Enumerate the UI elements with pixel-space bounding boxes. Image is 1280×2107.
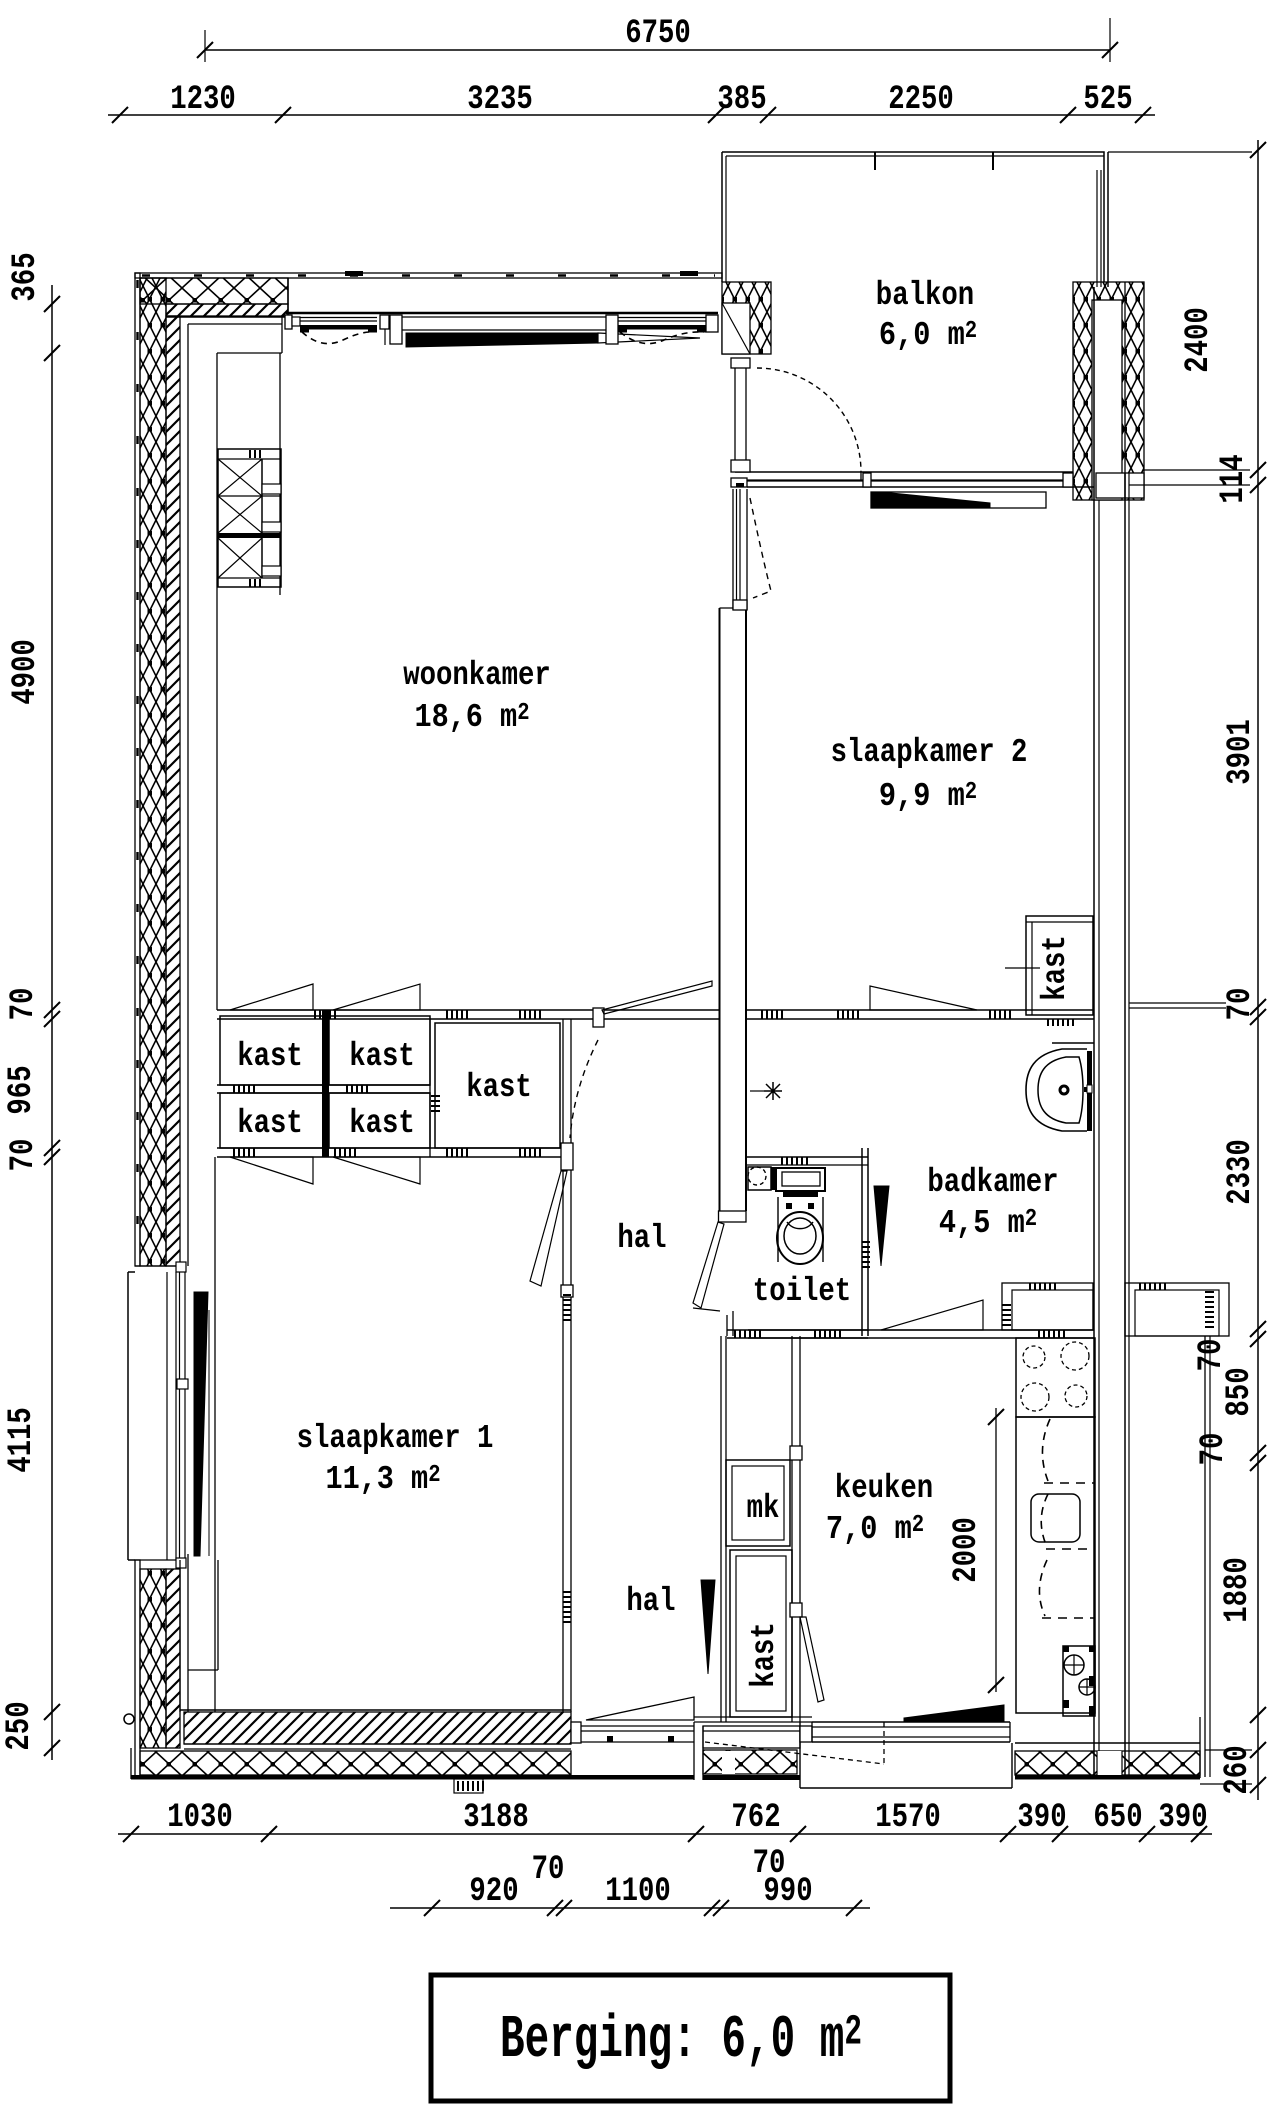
svg-text:850: 850 <box>1221 1367 1259 1416</box>
svg-text:1030: 1030 <box>167 1799 233 1837</box>
svg-text:18,6 m2: 18,6 m2 <box>414 699 529 736</box>
svg-text:2400: 2400 <box>1180 307 1218 373</box>
svg-text:2000: 2000 <box>948 1517 986 1583</box>
svg-text:kast: kast <box>466 1069 532 1106</box>
svg-text:390: 390 <box>1158 1799 1207 1837</box>
svg-text:slaapkamer 2: slaapkamer 2 <box>831 734 1028 771</box>
svg-text:balkon: balkon <box>876 277 974 314</box>
svg-text:kast: kast <box>349 1038 415 1075</box>
svg-text:6,0 m2: 6,0 m2 <box>879 317 977 354</box>
svg-text:385: 385 <box>717 81 766 119</box>
svg-text:4900: 4900 <box>7 639 45 705</box>
svg-text:250: 250 <box>1 1701 39 1750</box>
svg-text:hal: hal <box>617 1220 666 1257</box>
svg-text:6750: 6750 <box>625 15 691 53</box>
svg-text:kast: kast <box>237 1038 303 1075</box>
svg-text:4,5 m2: 4,5 m2 <box>939 1205 1037 1242</box>
svg-text:762: 762 <box>731 1799 780 1837</box>
svg-text:3901: 3901 <box>1222 719 1260 785</box>
svg-text:70: 70 <box>1222 988 1260 1021</box>
svg-text:3235: 3235 <box>467 81 533 119</box>
svg-text:slaapkamer 1: slaapkamer 1 <box>297 1420 494 1457</box>
svg-text:mk: mk <box>747 1490 780 1527</box>
svg-text:990: 990 <box>763 1873 812 1911</box>
svg-text:2250: 2250 <box>888 81 954 119</box>
svg-text:525: 525 <box>1083 81 1132 119</box>
svg-text:toilet: toilet <box>753 1273 851 1310</box>
svg-text:4115: 4115 <box>3 1407 41 1473</box>
svg-text:Berging: 6,0 m2: Berging: 6,0 m2 <box>500 2007 862 2075</box>
svg-text:1570: 1570 <box>875 1799 941 1837</box>
svg-text:1230: 1230 <box>170 81 236 119</box>
svg-text:70: 70 <box>1193 1339 1231 1372</box>
svg-text:woonkamer: woonkamer <box>403 657 551 694</box>
svg-text:kast: kast <box>237 1105 303 1142</box>
svg-text:965: 965 <box>3 1065 41 1114</box>
svg-text:kast: kast <box>1037 935 1074 1001</box>
svg-text:70: 70 <box>5 1139 43 1172</box>
svg-text:650: 650 <box>1093 1799 1142 1837</box>
svg-text:114: 114 <box>1215 454 1253 503</box>
svg-text:260: 260 <box>1219 1745 1257 1794</box>
svg-text:kast: kast <box>349 1105 415 1142</box>
svg-text:3188: 3188 <box>463 1799 529 1837</box>
svg-text:2330: 2330 <box>1222 1139 1260 1205</box>
svg-text:7,0 m2: 7,0 m2 <box>826 1511 924 1548</box>
svg-text:11,3 m2: 11,3 m2 <box>325 1461 440 1498</box>
svg-text:70: 70 <box>5 988 43 1021</box>
svg-text:390: 390 <box>1017 1799 1066 1837</box>
svg-text:920: 920 <box>469 1873 518 1911</box>
svg-text:9,9 m2: 9,9 m2 <box>879 778 977 815</box>
svg-text:hal: hal <box>626 1583 675 1620</box>
svg-text:kast: kast <box>746 1622 783 1688</box>
svg-text:1880: 1880 <box>1219 1557 1257 1623</box>
svg-text:1100: 1100 <box>605 1873 671 1911</box>
svg-text:365: 365 <box>7 252 45 301</box>
svg-text:70: 70 <box>532 1851 565 1889</box>
svg-text:keuken: keuken <box>835 1470 933 1507</box>
svg-text:badkamer: badkamer <box>927 1164 1058 1201</box>
svg-text:70: 70 <box>1195 1433 1233 1466</box>
